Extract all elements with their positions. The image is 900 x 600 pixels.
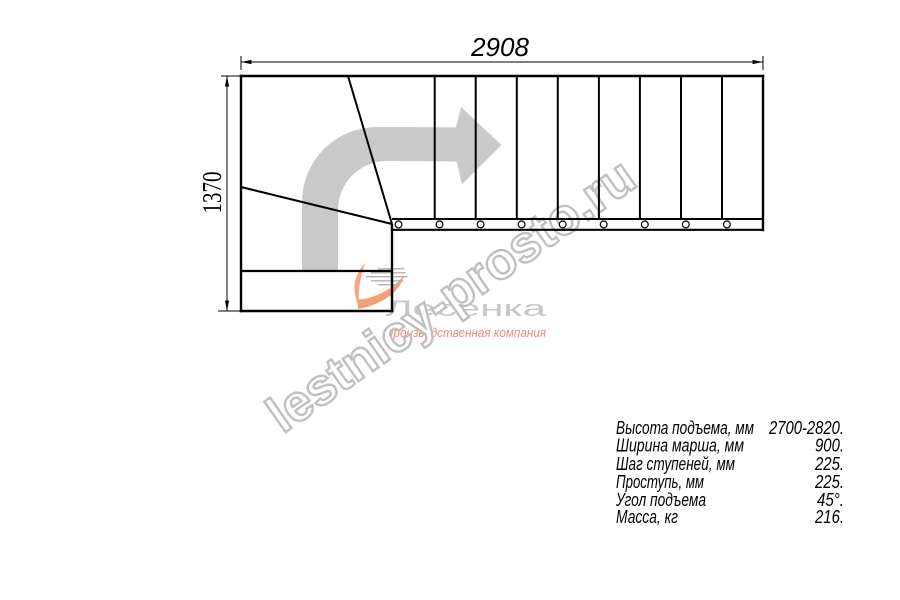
svg-text:225.: 225.: [814, 472, 844, 492]
svg-text:1370: 1370: [197, 172, 227, 214]
svg-text:Масса, кг: Масса, кг: [616, 507, 678, 527]
svg-text:2908: 2908: [470, 32, 529, 62]
svg-text:Ширина марша, мм: Ширина марша, мм: [616, 436, 744, 456]
svg-text:Проступь, мм: Проступь, мм: [616, 472, 704, 492]
svg-text:900.: 900.: [815, 436, 844, 456]
svg-text:216.: 216.: [814, 507, 844, 527]
